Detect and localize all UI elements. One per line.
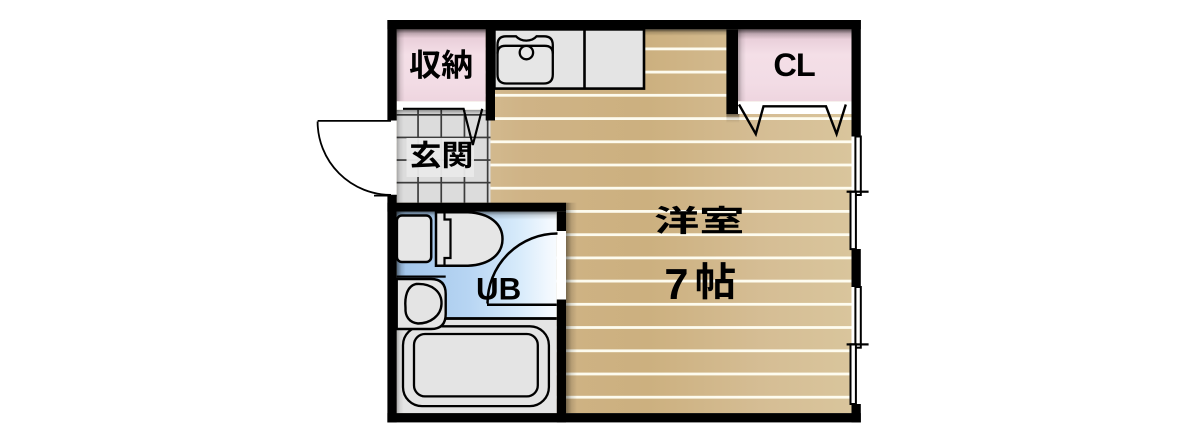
svg-text:CL: CL bbox=[773, 47, 814, 83]
svg-text:7: 7 bbox=[664, 261, 688, 309]
svg-text:UB: UB bbox=[476, 271, 521, 306]
